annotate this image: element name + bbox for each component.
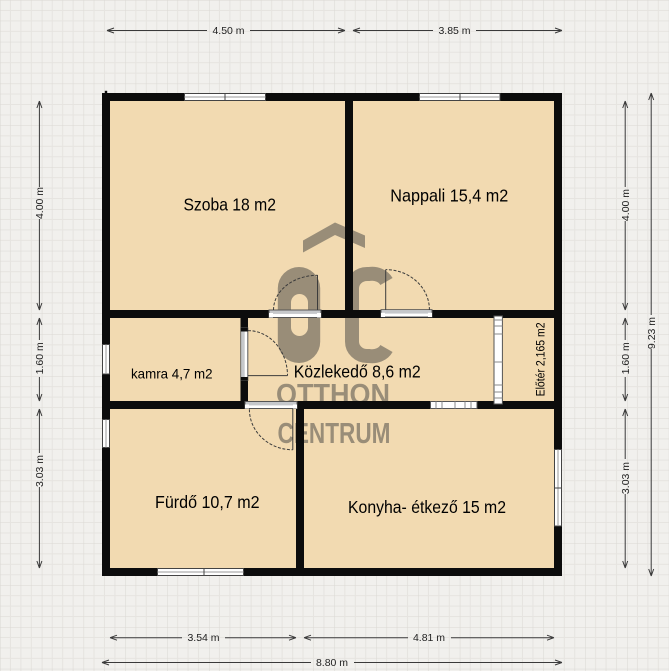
svg-text:4.00 m: 4.00 m [34, 187, 46, 219]
svg-text:CENTRUM: CENTRUM [278, 418, 391, 450]
svg-text:Nappali 15,4 m2: Nappali 15,4 m2 [390, 185, 508, 205]
svg-text:Szoba 18 m2: Szoba 18 m2 [183, 195, 276, 215]
svg-text:4.50 m: 4.50 m [212, 25, 244, 37]
svg-text:4.81 m: 4.81 m [413, 632, 445, 644]
svg-text:4.00 m: 4.00 m [620, 189, 632, 221]
svg-text:8.80 m: 8.80 m [316, 657, 348, 669]
svg-text:1.60 m: 1.60 m [620, 342, 632, 374]
svg-text:3.54 m: 3.54 m [187, 632, 219, 644]
svg-text:3.03 m: 3.03 m [34, 455, 46, 487]
svg-text:3.03 m: 3.03 m [620, 462, 632, 494]
svg-text:9.23 m: 9.23 m [646, 317, 658, 349]
svg-text:Konyha- étkező 15 m2: Konyha- étkező 15 m2 [348, 497, 506, 517]
svg-text:Közlekedő 8,6 m2: Közlekedő 8,6 m2 [294, 361, 421, 381]
svg-text:Előtér 2,165 m2: Előtér 2,165 m2 [536, 322, 548, 396]
svg-text:kamra 4,7 m2: kamra 4,7 m2 [131, 366, 213, 382]
svg-text:1.60 m: 1.60 m [34, 342, 46, 374]
svg-text:3.85 m: 3.85 m [438, 25, 470, 37]
svg-text:Fürdő 10,7 m2: Fürdő 10,7 m2 [155, 492, 260, 512]
